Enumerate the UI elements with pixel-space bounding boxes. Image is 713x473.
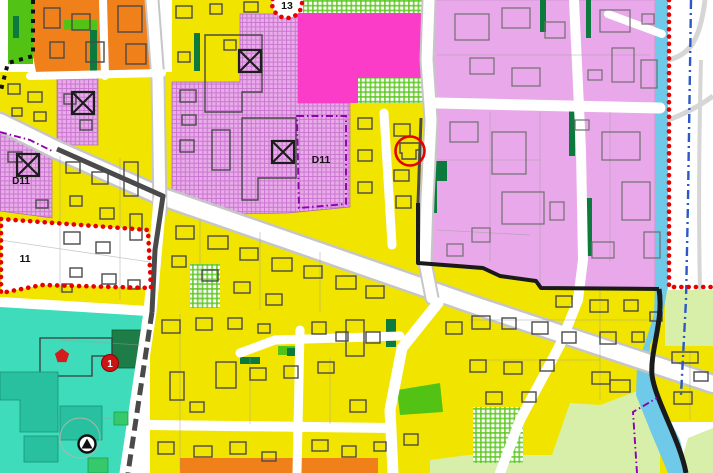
green-strip bbox=[586, 0, 591, 38]
zone-green-topleft bbox=[8, 0, 33, 64]
plan-area-11-label: 11 bbox=[19, 253, 30, 265]
public-building bbox=[24, 436, 58, 462]
green-strip bbox=[569, 110, 575, 156]
district-d11-center-label: D11 bbox=[312, 154, 331, 166]
green-strip bbox=[13, 16, 19, 38]
green-strip bbox=[194, 33, 200, 71]
map-canvas[interactable]: 13 1 D11 D11 11 bbox=[0, 0, 713, 473]
green-strip bbox=[90, 30, 97, 72]
green-strip bbox=[436, 161, 447, 181]
zone-greenland-east bbox=[665, 290, 713, 346]
playground-icon bbox=[79, 436, 96, 453]
district-d11-left-label: D11 bbox=[12, 176, 30, 187]
zone-mixed-orange-bottom bbox=[180, 458, 378, 473]
badge-1-icon: 1 bbox=[102, 355, 119, 372]
poi-badge-1-label: 1 bbox=[107, 359, 113, 370]
green-patch bbox=[114, 412, 128, 425]
zone-allotment-band bbox=[303, 0, 425, 13]
zone-allotment-notch bbox=[358, 78, 425, 103]
zone-mixed-purple-east bbox=[432, 0, 655, 288]
green-patch bbox=[88, 458, 108, 473]
green-strip bbox=[64, 20, 97, 30]
plan-area-13-label: 13 bbox=[281, 0, 293, 12]
